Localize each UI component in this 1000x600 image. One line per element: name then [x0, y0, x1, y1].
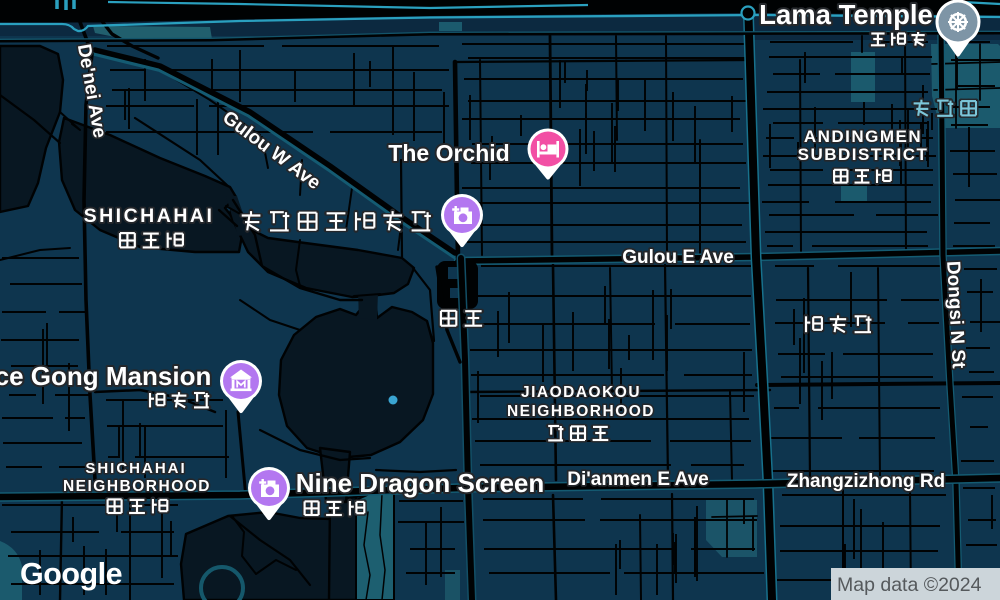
svg-text:Map data ©2024: Map data ©2024: [837, 574, 982, 596]
svg-text:Nine Dragon Screen: Nine Dragon Screen: [296, 468, 545, 498]
svg-text:SUBDISTRICT: SUBDISTRICT: [798, 145, 929, 164]
svg-text:NEIGHBORHOOD: NEIGHBORHOOD: [507, 403, 655, 420]
svg-text:The Orchid: The Orchid: [388, 140, 509, 166]
svg-text:Lama Temple: Lama Temple: [759, 0, 933, 30]
svg-text:NEIGHBORHOOD: NEIGHBORHOOD: [63, 478, 211, 495]
svg-text:Di'anmen E Ave: Di'anmen E Ave: [567, 469, 708, 490]
svg-text:Google: Google: [20, 557, 122, 591]
svg-text:SHICHAHAI: SHICHAHAI: [84, 205, 215, 227]
svg-text:JIAODAOKOU: JIAODAOKOU: [521, 384, 641, 401]
svg-text:ANDINGMEN: ANDINGMEN: [804, 127, 922, 146]
svg-text:Gulou E Ave: Gulou E Ave: [622, 247, 734, 268]
svg-text:ce Gong Mansion: ce Gong Mansion: [0, 361, 211, 391]
svg-text:SHICHAHAI: SHICHAHAI: [85, 460, 186, 477]
svg-text:Zhangzizhong Rd: Zhangzizhong Rd: [787, 471, 945, 492]
